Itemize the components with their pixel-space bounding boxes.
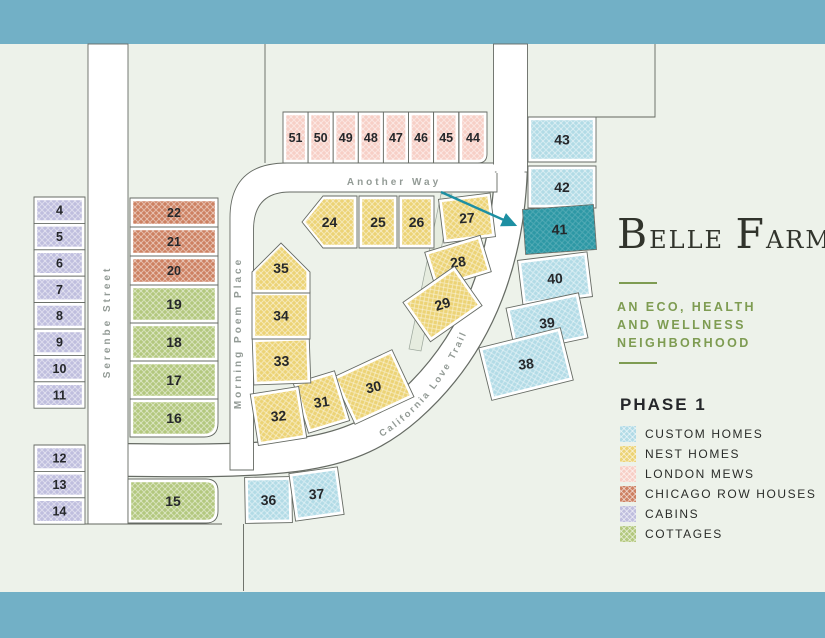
lot-16[interactable]: 16 (130, 399, 218, 437)
lot-25[interactable]: 25 (359, 196, 397, 248)
divider-rule-top (619, 282, 657, 284)
lot-46[interactable]: 46 (409, 112, 434, 163)
lot-number-4: 4 (56, 204, 63, 218)
lot-number-44: 44 (466, 131, 480, 145)
lot-12[interactable]: 12 (34, 445, 85, 471)
lot-37[interactable]: 37 (289, 467, 344, 521)
lot-number-43: 43 (554, 131, 570, 147)
lot-40[interactable]: 40 (518, 252, 593, 305)
lot-15[interactable]: 15 (128, 479, 218, 523)
lot-number-18: 18 (166, 334, 182, 350)
lot-number-24: 24 (322, 214, 338, 230)
lot-number-50: 50 (314, 131, 328, 145)
lot-number-21: 21 (167, 235, 181, 249)
lot-number-27: 27 (459, 209, 476, 226)
lot-32[interactable]: 32 (250, 386, 307, 445)
lot-35[interactable]: 35 (252, 243, 310, 293)
lot-number-38: 38 (517, 355, 535, 373)
legend-item-custom: Custom Homes (620, 424, 816, 444)
lot-51[interactable]: 51 (283, 112, 308, 163)
lot-11[interactable]: 11 (34, 382, 85, 408)
lot-number-13: 13 (53, 478, 67, 492)
legend-label: Nest Homes (645, 447, 740, 461)
lot-33[interactable]: 33 (252, 337, 311, 385)
legend-item-cottages: Cottages (620, 524, 816, 544)
lot-18[interactable]: 18 (130, 323, 218, 361)
lot-number-14: 14 (53, 504, 67, 518)
lot-10[interactable]: 10 (34, 355, 85, 381)
lot-number-40: 40 (547, 270, 564, 287)
brand-tagline: An Eco, Health and Wellness Neighborhood (617, 298, 817, 352)
lot-5[interactable]: 5 (34, 223, 85, 249)
tagline-line: Neighborhood (617, 334, 817, 352)
lot-8[interactable]: 8 (34, 303, 85, 329)
lot-47[interactable]: 47 (383, 112, 408, 163)
legend-label: Chicago Row Houses (645, 487, 816, 501)
junction-patch (497, 159, 525, 173)
tagline-line: An Eco, Health (617, 298, 817, 316)
lot-4[interactable]: 4 (34, 197, 85, 223)
lot-number-8: 8 (56, 309, 63, 323)
lot-number-47: 47 (389, 131, 403, 145)
lot-number-17: 17 (166, 372, 182, 388)
lot-24[interactable]: 24 (302, 196, 357, 248)
lot-43[interactable]: 43 (528, 117, 596, 162)
lot-19[interactable]: 19 (130, 285, 218, 323)
street-label-serenbe-street: Serenbe Street (102, 266, 113, 379)
legend-label: Cabins (645, 507, 699, 521)
cabins-swatch (620, 506, 636, 522)
lot-49[interactable]: 49 (333, 112, 358, 163)
lot-27[interactable]: 27 (439, 193, 496, 243)
lot-26[interactable]: 26 (399, 196, 434, 248)
lot-number-9: 9 (56, 336, 63, 350)
custom-swatch (620, 426, 636, 442)
lot-number-31: 31 (313, 393, 331, 411)
lot-number-49: 49 (339, 131, 353, 145)
lot-38[interactable]: 38 (479, 328, 574, 401)
logo-word-1: Belle (617, 210, 724, 258)
lot-number-32: 32 (270, 407, 287, 424)
lot-number-25: 25 (370, 214, 386, 230)
lot-number-6: 6 (56, 256, 63, 270)
lot-number-5: 5 (56, 230, 63, 244)
lot-number-46: 46 (414, 131, 428, 145)
legend-item-london: London Mews (620, 464, 816, 484)
lot-number-41: 41 (551, 221, 567, 238)
lot-number-34: 34 (273, 307, 289, 323)
legend-items: Custom HomesNest HomesLondon MewsChicago… (620, 424, 816, 544)
junction-patch (231, 442, 253, 469)
lot-number-48: 48 (364, 131, 378, 145)
lot-number-45: 45 (439, 131, 453, 145)
lot-number-19: 19 (166, 296, 182, 312)
london-swatch (620, 466, 636, 482)
lot-number-12: 12 (53, 452, 67, 466)
lot-number-22: 22 (167, 206, 181, 220)
lot-number-11: 11 (53, 388, 66, 402)
brand-panel: Belle Farm An Eco, Health and Wellness N… (617, 210, 817, 364)
nest-swatch (620, 446, 636, 462)
lot-42[interactable]: 42 (528, 166, 596, 208)
lot-36[interactable]: 36 (245, 477, 293, 524)
lot-17[interactable]: 17 (130, 361, 218, 399)
lot-7[interactable]: 7 (34, 276, 85, 302)
lot-14[interactable]: 14 (34, 498, 85, 524)
lot-44[interactable]: 44 (459, 112, 487, 163)
lot-50[interactable]: 50 (308, 112, 333, 163)
road-north-spur (494, 44, 528, 172)
legend-item-cabins: Cabins (620, 504, 816, 524)
lot-13[interactable]: 13 (34, 471, 85, 497)
street-label-another-way: Another Way (347, 177, 441, 188)
lot-number-35: 35 (273, 260, 289, 276)
lot-number-15: 15 (165, 493, 181, 509)
logo-word-2: Farm (736, 210, 825, 258)
cottages-swatch (620, 526, 636, 542)
legend-item-chicago: Chicago Row Houses (620, 484, 816, 504)
junction-patch (493, 165, 495, 192)
chicago-swatch (620, 486, 636, 502)
lot-number-33: 33 (274, 353, 290, 369)
lot-number-37: 37 (308, 485, 325, 502)
lot-22[interactable]: 22 (130, 198, 218, 227)
lot-41[interactable]: 41 (523, 205, 597, 255)
legend-title: Phase 1 (620, 395, 816, 415)
legend-item-nest: Nest Homes (620, 444, 816, 464)
tagline-line: and Wellness (617, 316, 817, 334)
brand-logo: Belle Farm (617, 210, 817, 258)
lot-number-42: 42 (554, 179, 570, 195)
legend-label: Cottages (645, 527, 723, 541)
lot-number-26: 26 (409, 214, 425, 230)
lot-21[interactable]: 21 (130, 227, 218, 256)
lot-number-16: 16 (166, 410, 182, 426)
lot-number-51: 51 (289, 131, 303, 145)
lot-number-7: 7 (56, 283, 63, 297)
lot-number-20: 20 (167, 264, 181, 278)
lot-20[interactable]: 20 (130, 256, 218, 285)
lot-6[interactable]: 6 (34, 250, 85, 276)
lot-48[interactable]: 48 (358, 112, 383, 163)
lot-45[interactable]: 45 (434, 112, 459, 163)
lot-number-10: 10 (53, 362, 67, 376)
street-label-morning-poem-place: Morning Poem Place (233, 257, 244, 409)
lot-34[interactable]: 34 (252, 292, 310, 339)
site-plan: 4567891011121314222120191817161551504948… (0, 0, 825, 638)
legend-label: Custom Homes (645, 427, 763, 441)
lot-number-36: 36 (261, 492, 277, 508)
lot-9[interactable]: 9 (34, 329, 85, 355)
legend-label: London Mews (645, 467, 755, 481)
divider-rule-bottom (619, 362, 657, 364)
legend: Phase 1 Custom HomesNest HomesLondon Mew… (620, 395, 816, 544)
